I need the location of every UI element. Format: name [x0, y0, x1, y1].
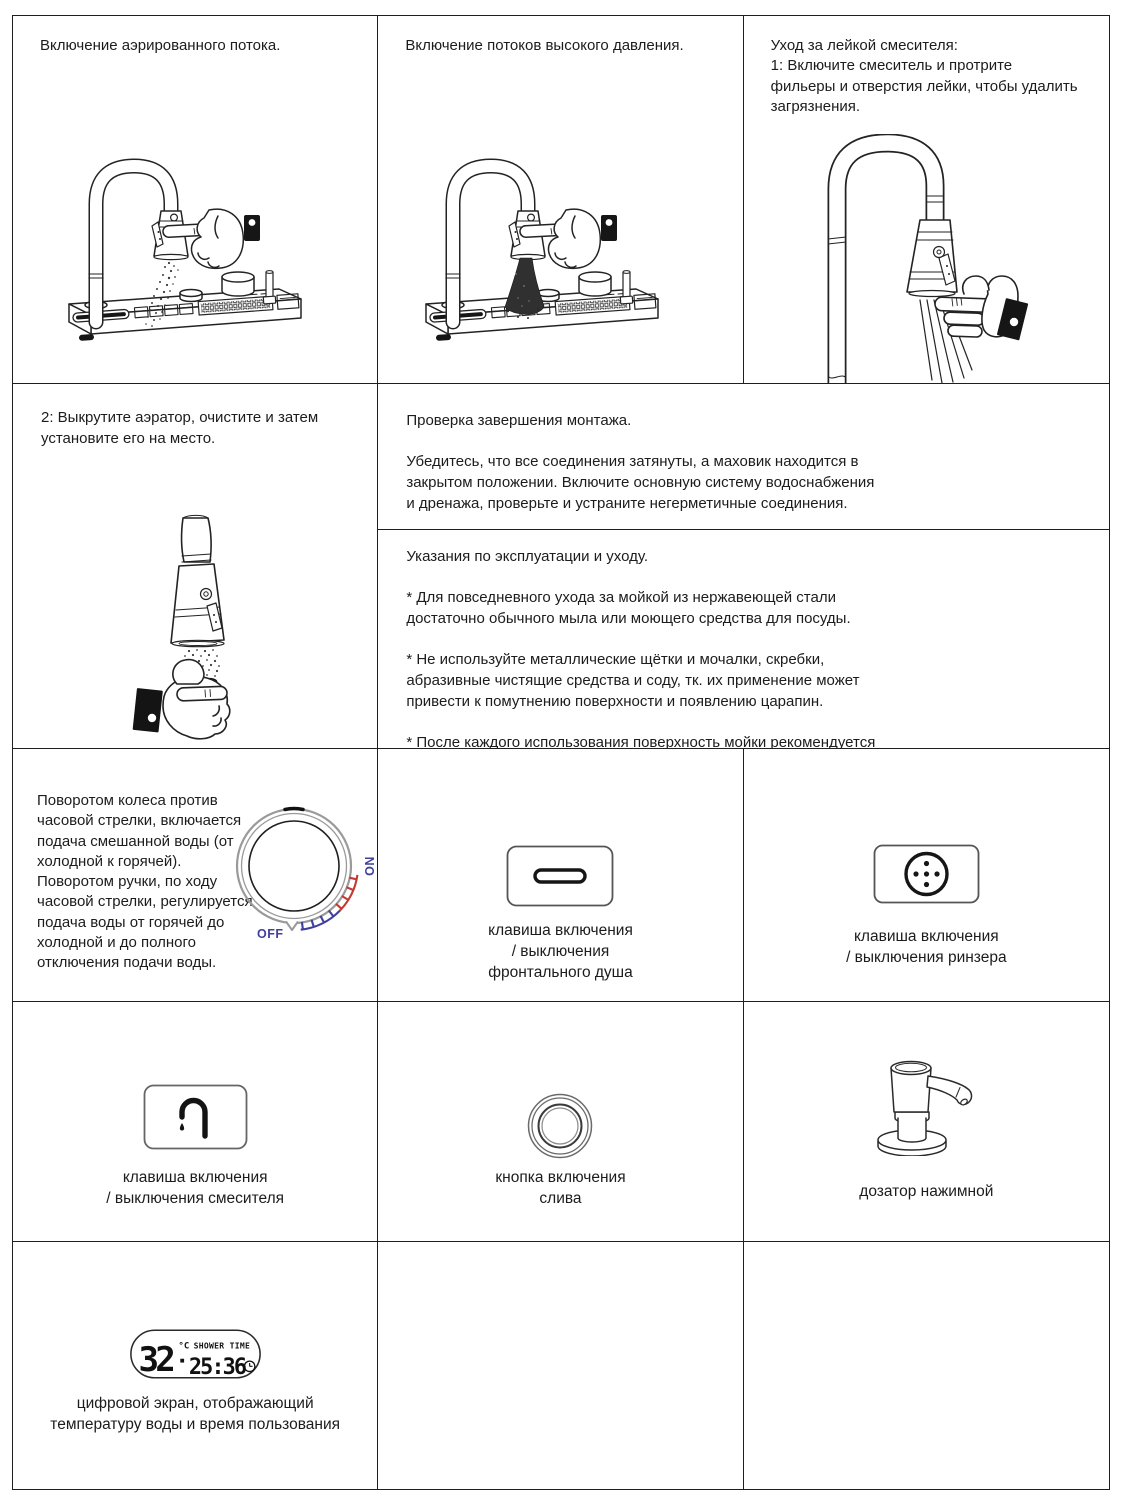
cell-front-shower-key: клавиша включения / выключения фронтальн…	[378, 749, 743, 1002]
faucet-high-pressure-diagram	[398, 154, 708, 379]
faucet-instruction-sheet: Включение аэрированного потока. Включени…	[12, 15, 1110, 1490]
cell-empty-bottom-middle	[378, 1242, 743, 1489]
screen-dot	[180, 1359, 184, 1363]
dial-off-label: OFF	[257, 927, 284, 941]
cell-digital-screen: 32 °C SHOWER TIME 25:36 цифровой экран, …	[13, 1242, 378, 1489]
pressure-jet	[505, 258, 544, 319]
drain-button-icon	[526, 1092, 594, 1160]
screen-label: SHOWER TIME	[193, 1341, 250, 1350]
cell-spray-care: Уход за лейкой смесителя: 1: Включите см…	[744, 16, 1109, 384]
aerator-cleaning-diagram	[119, 512, 319, 747]
dial-top-mark	[285, 809, 303, 810]
front-shower-key-caption: клавиша включения / выключения фронтальн…	[488, 921, 633, 984]
soap-dispenser-icon	[864, 1054, 988, 1156]
cell-aerator-step2: 2: Выкрутите аэратор, очистите и затем у…	[13, 384, 378, 749]
dial-pointer-notch	[286, 922, 298, 931]
dial-on-label: ON	[363, 856, 377, 876]
mixer-key-caption: клавиша включения / выключения смесителя	[106, 1168, 284, 1210]
dial-cold-arc	[301, 911, 340, 930]
screen-temp-unit: °C	[178, 1341, 189, 1351]
care-instructions-text: Указания по эксплуатации и уходу. * Для …	[378, 530, 1109, 749]
cell-mixer-key: клавиша включения / выключения смесителя	[13, 1002, 378, 1242]
mixer-key-icon	[143, 1084, 248, 1150]
cell-installation-check: Проверка завершения монтажа. Убедитесь, …	[378, 384, 1109, 530]
aerated-flow-title: Включение аэрированного потока.	[13, 16, 377, 56]
installation-check-text: Проверка завершения монтажа. Убедитесь, …	[378, 384, 1109, 514]
rinser-key-caption: клавиша включения / выключения ринзера	[846, 927, 1007, 969]
digital-screen-icon: 32 °C SHOWER TIME 25:36	[129, 1328, 262, 1380]
cell-care-instructions: Указания по эксплуатации и уходу. * Для …	[378, 530, 1109, 749]
temperature-dial-diagram: ON OFF	[229, 803, 378, 943]
cell-empty-bottom-right	[744, 1242, 1109, 1489]
cell-soap-dispenser: дозатор нажимной	[744, 1002, 1109, 1242]
cell-drain-button: кнопка включения слива	[378, 1002, 743, 1242]
spray-care-title: Уход за лейкой смесителя: 1: Включите см…	[744, 16, 1109, 117]
screen-temperature: 32	[138, 1340, 173, 1380]
rinser-key-icon	[873, 844, 980, 904]
cell-aerated-flow: Включение аэрированного потока.	[13, 16, 378, 384]
high-pressure-title: Включение потоков высокого давления.	[378, 16, 742, 56]
soap-dispenser-caption: дозатор нажимной	[859, 1182, 993, 1203]
screen-time: 25:36	[189, 1355, 246, 1380]
cell-rinser-key: клавиша включения / выключения ринзера	[744, 749, 1109, 1002]
front-shower-key-icon	[506, 845, 614, 907]
cell-temperature-dial: Поворотом колеса против часовой стрелки,…	[13, 749, 378, 1002]
digital-screen-caption: цифровой экран, отображающий температуру…	[50, 1394, 340, 1436]
drain-button-caption: кнопка включения слива	[495, 1168, 625, 1210]
aerator-step2-text: 2: Выкрутите аэратор, очистите и затем у…	[13, 384, 377, 449]
faucet-aerated-flow-diagram	[41, 154, 351, 379]
cell-high-pressure: Включение потоков высокого давления.	[378, 16, 743, 384]
faucet-spray-care-diagram	[792, 134, 1082, 384]
